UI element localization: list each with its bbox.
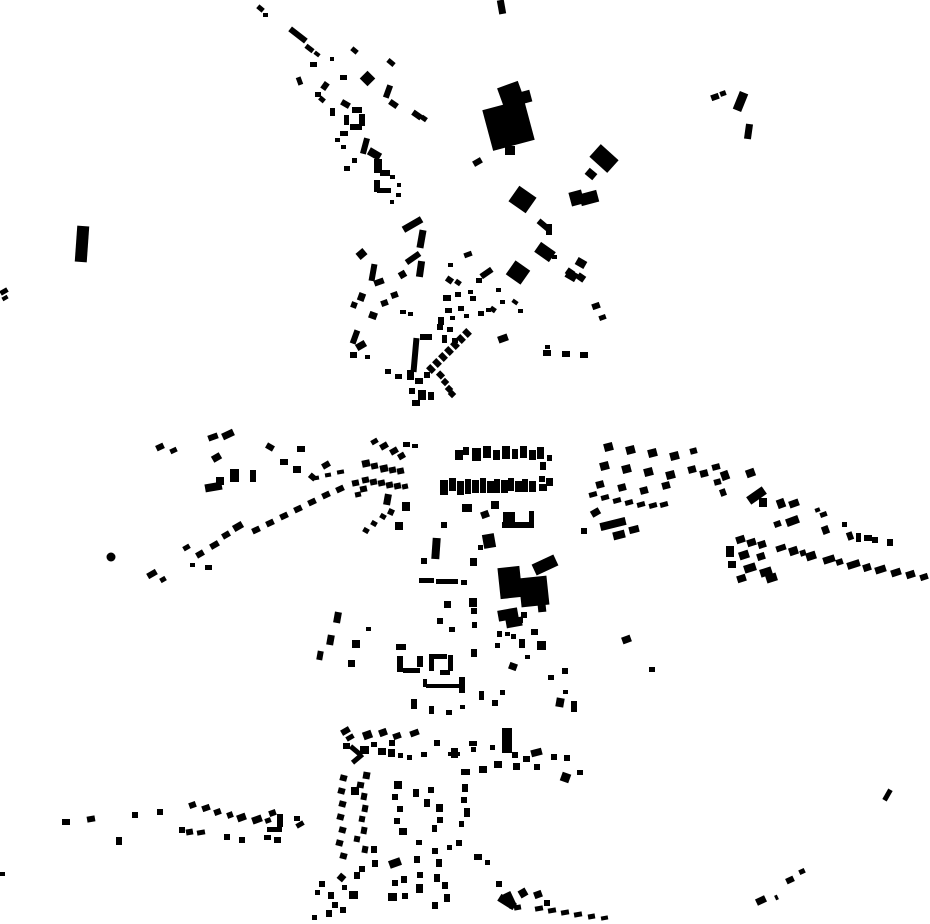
building-footprint: [503, 512, 515, 522]
building-footprint: [330, 108, 335, 116]
building-footprint: [345, 733, 354, 741]
building-footprint: [360, 71, 376, 87]
building-footprint: [352, 640, 360, 648]
building-footprint: [325, 473, 332, 478]
building-footprint: [460, 705, 465, 709]
building-footprint: [416, 261, 425, 278]
building-footprint: [354, 872, 360, 879]
building-footprint: [365, 355, 370, 359]
building-footprint: [591, 302, 601, 310]
building-footprint: [508, 186, 536, 214]
building-footprint: [409, 388, 415, 394]
building-footprint: [585, 168, 598, 181]
building-footprint: [728, 561, 736, 568]
building-footprint: [562, 351, 570, 357]
building-footprint: [412, 400, 420, 406]
building-footprint: [362, 527, 370, 534]
building-footprint: [659, 501, 668, 508]
building-footprint: [370, 462, 378, 469]
building-footprint: [239, 837, 245, 843]
building-footprint: [288, 26, 307, 43]
building-footprint: [392, 794, 398, 800]
building-footprint: [62, 819, 70, 825]
building-footprint: [320, 81, 330, 91]
building-footprint: [421, 558, 427, 564]
building-footprint: [398, 753, 403, 758]
building-footprint: [533, 890, 543, 899]
building-footprint: [822, 554, 836, 564]
building-footprint: [369, 478, 377, 485]
building-footprint: [814, 507, 820, 512]
building-footprint: [733, 91, 748, 112]
building-footprint: [463, 447, 469, 455]
building-footprint: [350, 352, 357, 358]
building-footprint: [643, 467, 654, 477]
building-footprint: [511, 634, 516, 639]
building-footprint: [319, 881, 325, 887]
building-footprint: [294, 816, 300, 821]
building-footprint: [434, 740, 440, 746]
building-footprint: [535, 905, 544, 911]
building-footprint: [890, 568, 902, 578]
building-footprint: [520, 446, 527, 458]
building-footprint: [511, 299, 518, 306]
building-footprint: [397, 183, 401, 187]
building-footprint: [236, 813, 247, 823]
building-footprint: [336, 813, 344, 821]
building-footprint: [213, 808, 222, 816]
building-footprint: [361, 805, 368, 813]
building-footprint: [330, 57, 334, 61]
building-footprint: [264, 835, 271, 840]
building-footprint: [444, 601, 451, 608]
building-footprint: [348, 660, 355, 667]
building-footprint: [342, 885, 347, 890]
building-footprint: [713, 478, 721, 486]
building-footprint: [719, 90, 726, 97]
building-footprint: [188, 801, 197, 809]
building-footprint: [531, 629, 538, 635]
building-footprint: [745, 468, 756, 479]
building-footprint: [337, 469, 345, 474]
building-footprint: [437, 618, 443, 624]
building-footprint: [864, 535, 872, 541]
building-footprint: [624, 499, 633, 506]
building-footprint: [882, 789, 892, 802]
building-footprint: [502, 522, 530, 528]
building-footprint: [315, 890, 320, 895]
building-footprint: [436, 370, 445, 379]
building-footprint: [562, 668, 568, 674]
building-footprint: [204, 482, 222, 493]
building-footprint: [385, 481, 393, 488]
building-footprint: [448, 752, 460, 756]
building-footprint: [352, 107, 362, 113]
building-footprint: [418, 390, 426, 400]
building-footprint: [304, 44, 314, 53]
building-footprint: [340, 99, 351, 109]
building-footprint: [409, 729, 420, 738]
building-footprint: [665, 470, 676, 480]
building-footprint: [532, 554, 559, 575]
building-footprint: [444, 346, 454, 356]
building-footprint: [379, 464, 388, 473]
building-footprint: [438, 317, 444, 325]
building-footprint: [508, 662, 518, 671]
building-footprint: [432, 358, 442, 368]
building-footprint: [497, 334, 509, 344]
building-footprint: [500, 690, 505, 695]
figure-ground-map: [0, 0, 930, 924]
building-footprint: [195, 549, 205, 558]
building-footprint: [340, 131, 348, 136]
building-footprint: [397, 656, 403, 672]
building-footprint: [440, 670, 450, 675]
building-footprint: [423, 679, 427, 687]
building-footprint: [574, 911, 583, 917]
building-footprint: [636, 501, 645, 508]
building-footprint: [349, 891, 358, 899]
building-footprint: [437, 324, 443, 330]
building-footprint: [589, 144, 618, 173]
building-footprint: [388, 749, 395, 757]
building-footprint: [412, 444, 418, 448]
building-footprint: [746, 538, 757, 547]
building-footprint: [337, 873, 347, 883]
building-footprint: [444, 894, 450, 902]
building-footprint: [497, 631, 502, 637]
building-footprint: [424, 372, 430, 378]
building-footprint: [497, 0, 506, 15]
building-footprint: [872, 537, 878, 543]
building-footprint: [380, 299, 389, 307]
building-footprint: [496, 881, 502, 887]
building-footprint: [256, 4, 265, 12]
building-footprint: [265, 519, 275, 528]
building-footprint: [326, 634, 335, 645]
building-footprint: [442, 335, 447, 343]
building-footprint: [552, 255, 557, 259]
building-footprint: [265, 442, 275, 451]
building-footprint: [251, 815, 263, 825]
building-footprint: [366, 627, 371, 631]
building-footprint: [116, 837, 122, 845]
building-footprint: [522, 479, 528, 492]
building-footprint: [337, 787, 345, 795]
building-footprint: [738, 550, 750, 561]
building-footprint: [392, 732, 402, 740]
building-footprint: [508, 478, 514, 491]
building-footprint: [544, 900, 550, 906]
building-footprint: [426, 684, 459, 688]
building-footprint: [307, 498, 317, 507]
building-footprint: [450, 316, 455, 320]
building-footprint: [402, 502, 410, 511]
building-footprint: [75, 226, 89, 263]
building-footprint: [625, 445, 636, 455]
building-footprint: [575, 257, 588, 269]
building-footprint: [543, 350, 551, 356]
building-footprint: [411, 338, 420, 372]
building-footprint: [296, 76, 303, 85]
building-footprint: [155, 443, 165, 452]
building-footprint: [493, 450, 500, 460]
building-footprint: [338, 826, 346, 834]
building-footprint: [445, 308, 452, 313]
building-footprint: [321, 460, 331, 469]
building-footprint: [383, 84, 393, 98]
building-footprint: [482, 533, 496, 549]
building-footprint: [455, 292, 461, 297]
building-footprint: [785, 876, 795, 885]
building-footprint: [414, 856, 420, 863]
building-footprint: [856, 533, 861, 542]
building-footprint: [448, 655, 453, 671]
building-footprint: [775, 544, 786, 553]
building-footprint: [321, 491, 331, 500]
building-footprint: [501, 480, 508, 493]
building-footprint: [603, 442, 614, 452]
building-footprint: [788, 546, 799, 556]
building-footprint: [471, 747, 476, 752]
building-footprint: [785, 515, 800, 527]
building-footprint: [470, 558, 477, 566]
building-footprint: [339, 774, 347, 782]
building-footprint: [490, 745, 495, 750]
building-footprint: [333, 611, 342, 623]
building-footprint: [408, 312, 413, 316]
building-footprint: [434, 874, 440, 882]
building-footprint: [548, 907, 557, 913]
building-footprint: [343, 743, 350, 749]
building-footprint: [478, 311, 484, 316]
building-footprint: [432, 825, 437, 832]
building-footprint: [277, 814, 283, 827]
building-footprint: [340, 75, 347, 80]
building-footprint: [436, 804, 443, 812]
building-footprint: [359, 485, 367, 492]
building-footprint: [368, 311, 378, 320]
building-footprint: [397, 806, 403, 812]
building-footprint: [521, 612, 527, 618]
building-footprint: [621, 464, 632, 474]
building-footprint: [478, 545, 483, 550]
building-footprint: [887, 539, 893, 546]
building-footprint: [719, 488, 727, 497]
building-footprint: [588, 913, 596, 919]
building-footprint: [479, 691, 484, 700]
building-footprint: [648, 502, 657, 509]
building-footprint: [274, 837, 281, 843]
building-footprint: [388, 893, 397, 901]
building-footprint: [500, 300, 505, 304]
building-footprint: [821, 525, 830, 535]
building-footprint: [755, 895, 767, 906]
building-footprint: [429, 706, 434, 714]
building-footprint: [649, 667, 655, 672]
building-footprint: [355, 248, 367, 260]
building-footprint: [461, 797, 467, 803]
building-footprint: [710, 93, 720, 101]
building-footprint: [588, 491, 597, 498]
building-footprint: [359, 866, 365, 872]
building-footprint: [506, 260, 530, 284]
building-footprint: [518, 309, 523, 313]
building-footprint: [539, 476, 545, 482]
building-footprint: [394, 781, 402, 789]
building-footprint: [310, 62, 317, 67]
building-footprint: [537, 447, 544, 459]
building-footprint: [385, 369, 391, 374]
building-footprint: [438, 352, 448, 362]
building-footprint: [759, 498, 767, 507]
building-footprint: [544, 251, 551, 256]
building-footprint: [548, 675, 554, 680]
building-footprint: [420, 334, 432, 340]
building-footprint: [352, 158, 357, 163]
building-footprint: [209, 540, 220, 550]
building-footprint: [463, 251, 472, 258]
building-footprint: [398, 270, 408, 280]
building-footprint: [534, 764, 540, 770]
building-footprint: [599, 517, 626, 531]
building-footprint: [774, 895, 779, 901]
building-footprint: [464, 314, 469, 318]
building-footprint: [417, 656, 423, 667]
building-footprint: [361, 459, 370, 468]
building-footprint: [379, 441, 389, 450]
building-footprint: [379, 513, 387, 520]
building-footprint: [571, 701, 577, 712]
building-footprint: [457, 481, 464, 495]
building-footprint: [469, 741, 477, 746]
building-footprint: [372, 860, 378, 867]
building-footprint: [687, 465, 697, 474]
building-footprint: [394, 818, 400, 824]
building-footprint: [538, 605, 547, 613]
building-footprint: [919, 573, 928, 581]
building-footprint: [449, 627, 455, 632]
building-footprint: [486, 308, 491, 312]
building-footprint: [360, 793, 367, 801]
building-footprint: [308, 472, 317, 481]
building-footprint: [744, 124, 753, 140]
building-footprint: [351, 479, 359, 486]
building-footprint: [428, 787, 434, 793]
building-footprint: [479, 766, 487, 773]
building-footprint: [279, 512, 289, 521]
building-footprint: [230, 469, 239, 482]
building-footprint: [628, 525, 639, 534]
building-footprint: [547, 455, 552, 461]
building-footprint: [479, 267, 493, 279]
building-footprint: [393, 482, 401, 489]
building-footprint: [595, 480, 605, 489]
building-footprint: [341, 145, 346, 149]
building-footprint: [268, 809, 277, 817]
building-footprint: [419, 578, 434, 583]
building-footprint: [354, 836, 361, 843]
building-footprint: [378, 728, 388, 737]
building-footprint: [483, 446, 491, 458]
building-footprint: [480, 510, 490, 519]
building-footprint: [529, 450, 536, 460]
building-footprint: [267, 827, 282, 832]
building-footprint: [476, 278, 482, 283]
building-footprint: [846, 531, 854, 541]
building-footprint: [197, 829, 206, 835]
building-footprint: [494, 479, 500, 493]
building-footprint: [370, 438, 379, 446]
building-footprint: [359, 816, 366, 823]
building-footprint: [263, 13, 268, 17]
building-footprint: [436, 859, 442, 867]
building-footprint: [0, 872, 5, 876]
building-footprint: [458, 306, 464, 311]
building-footprint: [461, 580, 467, 585]
building-footprint: [492, 700, 498, 706]
building-footprint: [182, 544, 191, 552]
building-footprint: [293, 466, 301, 473]
building-footprint: [400, 310, 406, 314]
building-footprint: [455, 450, 463, 460]
building-footprint: [436, 579, 458, 584]
building-footprint: [661, 481, 671, 490]
building-footprint: [340, 726, 351, 736]
building-footprint: [335, 485, 345, 494]
building-footprint: [428, 392, 434, 400]
building-footprint: [251, 526, 261, 535]
building-footprint: [388, 466, 396, 473]
building-footprint: [482, 99, 534, 151]
building-footprint: [462, 328, 472, 338]
building-footprint: [599, 461, 610, 471]
building-footprint: [689, 447, 697, 455]
building-footprint: [447, 327, 453, 332]
building-footprint: [371, 742, 377, 747]
building-footprint: [205, 565, 212, 570]
building-footprint: [600, 494, 609, 501]
building-footprint: [437, 817, 443, 823]
building-footprint: [432, 902, 438, 909]
building-footprint: [487, 481, 494, 493]
building-footprint: [472, 480, 479, 493]
building-footprint: [361, 476, 369, 483]
building-footprint: [416, 840, 422, 845]
building-footprint: [357, 292, 366, 302]
building-footprint: [621, 635, 632, 645]
building-footprint: [397, 452, 406, 461]
building-footprint: [280, 459, 288, 465]
building-footprint: [424, 799, 430, 807]
building-footprint: [403, 442, 410, 447]
building-footprint: [639, 486, 649, 495]
building-footprint: [386, 58, 395, 67]
building-footprint: [462, 504, 472, 512]
building-footprint: [496, 288, 501, 292]
building-footprint: [612, 530, 626, 541]
building-footprint: [186, 828, 194, 835]
building-footprint: [441, 522, 447, 528]
building-footprint: [312, 915, 317, 920]
building-footprint: [421, 752, 427, 757]
building-footprint: [519, 639, 525, 648]
building-footprint: [529, 481, 536, 492]
building-footprint: [416, 884, 423, 893]
building-footprint: [862, 563, 872, 572]
building-footprint: [669, 451, 680, 461]
building-footprint: [315, 92, 321, 97]
